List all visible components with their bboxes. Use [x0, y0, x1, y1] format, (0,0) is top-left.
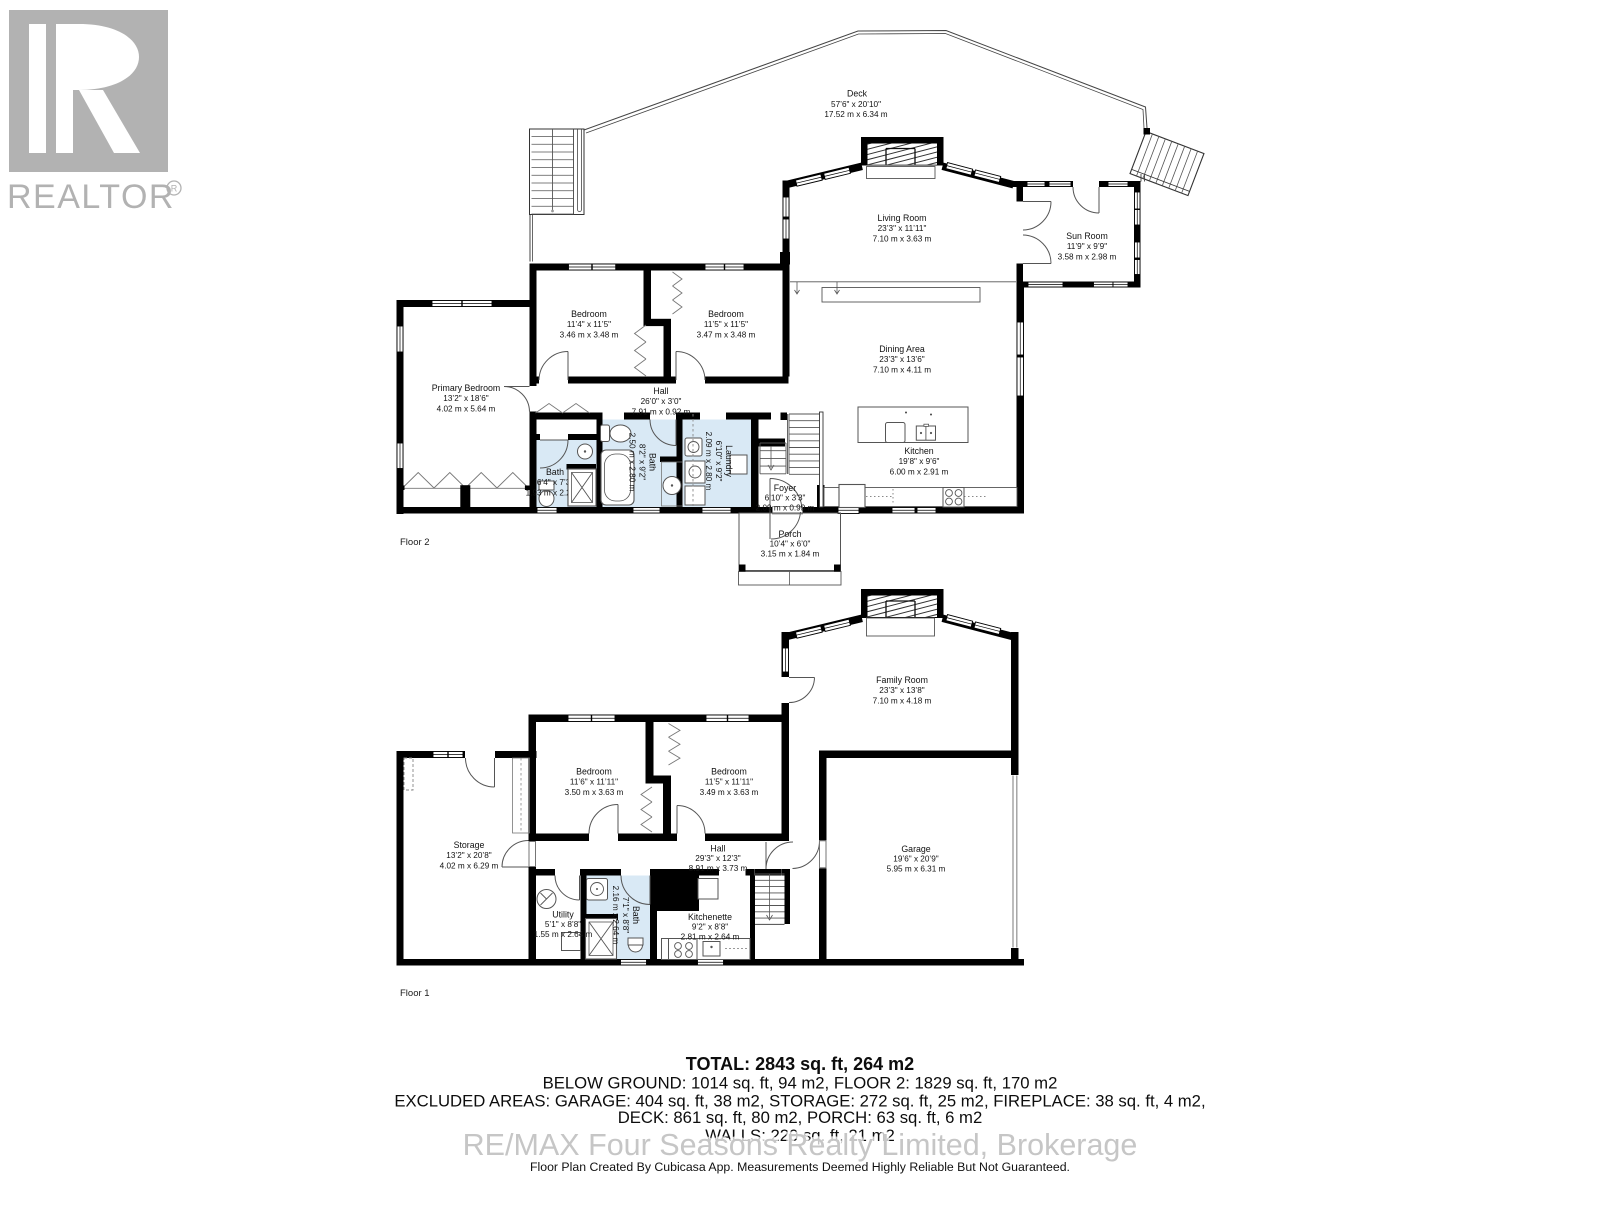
- svg-text:11’4" x 11’5": 11’4" x 11’5": [567, 320, 611, 329]
- svg-text:Kitchenette: Kitchenette: [688, 912, 732, 922]
- svg-text:3.58 m x 2.98 m: 3.58 m x 2.98 m: [1058, 252, 1117, 261]
- svg-text:2.09 m x 2.80 m: 2.09 m x 2.80 m: [704, 432, 713, 491]
- svg-text:7.91 m x 0.92 m: 7.91 m x 0.92 m: [632, 407, 691, 416]
- svg-text:2.16 m x 2.64 m: 2.16 m x 2.64 m: [611, 886, 620, 945]
- svg-text:6’10" x 3’3": 6’10" x 3’3": [765, 494, 806, 503]
- svg-text:Deck: Deck: [847, 89, 868, 99]
- svg-text:13’2" x 18’6": 13’2" x 18’6": [443, 394, 489, 403]
- svg-text:Family Room: Family Room: [876, 675, 928, 685]
- svg-text:RE/MAX Four Seasons Realty Lim: RE/MAX Four Seasons Realty Limited, Brok…: [463, 1128, 1138, 1162]
- svg-text:19’6" x 20’9": 19’6" x 20’9": [893, 855, 939, 864]
- svg-text:REALTOR: REALTOR: [7, 178, 175, 216]
- svg-text:19’8" x 9’6": 19’8" x 9’6": [899, 457, 940, 466]
- svg-text:Garage: Garage: [901, 844, 930, 854]
- svg-text:8.91 m x 3.73 m: 8.91 m x 3.73 m: [689, 864, 748, 873]
- svg-text:6’10" x 9’2": 6’10" x 9’2": [714, 441, 723, 482]
- svg-text:Bedroom: Bedroom: [576, 767, 612, 777]
- svg-text:2.81 m x 2.64 m: 2.81 m x 2.64 m: [681, 932, 740, 941]
- svg-text:Sun Room: Sun Room: [1066, 231, 1108, 241]
- svg-text:7’1" x 8’8": 7’1" x 8’8": [621, 897, 630, 933]
- svg-text:Floor Plan Created By Cubicasa: Floor Plan Created By Cubicasa App. Meas…: [530, 1160, 1070, 1174]
- svg-text:Hall: Hall: [653, 386, 668, 396]
- svg-text:7.10 m x 4.11 m: 7.10 m x 4.11 m: [873, 365, 931, 374]
- svg-text:17.52 m x 6.34 m: 17.52 m x 6.34 m: [824, 110, 887, 119]
- svg-text:4.02 m x 6.29 m: 4.02 m x 6.29 m: [440, 861, 499, 870]
- svg-text:3.47 m x 3.48 m: 3.47 m x 3.48 m: [697, 330, 756, 339]
- svg-text:2.09 m x 0.99 m: 2.09 m x 0.99 m: [756, 503, 815, 512]
- svg-text:Foyer: Foyer: [774, 483, 797, 493]
- svg-text:R: R: [171, 184, 178, 194]
- svg-text:11’5" x 11’11": 11’5" x 11’11": [705, 778, 753, 787]
- svg-text:23’3" x 11’11": 23’3" x 11’11": [878, 224, 927, 233]
- svg-text:11’9" x 9’9": 11’9" x 9’9": [1067, 242, 1107, 251]
- svg-text:23’3" x 13’6": 23’3" x 13’6": [879, 355, 925, 364]
- svg-text:Bedroom: Bedroom: [571, 309, 607, 319]
- svg-text:2.50 m x 2.80 m: 2.50 m x 2.80 m: [628, 433, 637, 492]
- svg-text:Porch: Porch: [779, 529, 802, 539]
- svg-text:Floor 2: Floor 2: [400, 537, 430, 548]
- svg-text:Laundry: Laundry: [724, 445, 734, 477]
- svg-text:23’3" x 13’8": 23’3" x 13’8": [879, 686, 925, 695]
- svg-text:Floor 1: Floor 1: [400, 988, 430, 999]
- svg-text:3.50 m x 3.63 m: 3.50 m x 3.63 m: [565, 788, 624, 797]
- svg-text:10’4" x 6’0": 10’4" x 6’0": [770, 540, 811, 549]
- svg-text:Primary Bedroom: Primary Bedroom: [432, 383, 500, 393]
- svg-text:57’6" x 20’10": 57’6" x 20’10": [831, 100, 881, 109]
- svg-text:11’5" x 11’5": 11’5" x 11’5": [704, 320, 748, 329]
- svg-text:5’1" x 8’8": 5’1" x 8’8": [545, 920, 581, 929]
- svg-text:3.49 m x 3.63 m: 3.49 m x 3.63 m: [700, 788, 759, 797]
- svg-text:7.10 m x 4.18 m: 7.10 m x 4.18 m: [873, 696, 932, 705]
- svg-text:29’3" x 12’3": 29’3" x 12’3": [695, 854, 741, 863]
- svg-text:8’2" x 9’2": 8’2" x 9’2": [638, 444, 647, 480]
- svg-text:Bedroom: Bedroom: [708, 309, 744, 319]
- svg-text:3.46 m x 3.48 m: 3.46 m x 3.48 m: [560, 330, 619, 339]
- svg-text:5.95 m x 6.31 m: 5.95 m x 6.31 m: [887, 864, 946, 873]
- svg-text:Kitchen: Kitchen: [904, 446, 933, 456]
- svg-text:Bedroom: Bedroom: [711, 767, 747, 777]
- svg-text:7.10 m x 3.63 m: 7.10 m x 3.63 m: [873, 234, 932, 243]
- svg-text:Bath: Bath: [648, 453, 658, 471]
- svg-text:Bath: Bath: [546, 467, 564, 477]
- svg-text:Living Room: Living Room: [878, 213, 927, 223]
- svg-text:13’2" x 20’8": 13’2" x 20’8": [446, 851, 492, 860]
- svg-text:4.02 m x 5.64 m: 4.02 m x 5.64 m: [437, 404, 496, 413]
- svg-text:Utility: Utility: [552, 910, 574, 920]
- svg-text:26’0" x 3’0": 26’0" x 3’0": [641, 397, 682, 406]
- svg-text:1.55 m x 2.64 m: 1.55 m x 2.64 m: [534, 930, 593, 939]
- svg-text:9’2" x 8’8": 9’2" x 8’8": [692, 923, 728, 932]
- svg-text:3.15 m x 1.84 m: 3.15 m x 1.84 m: [761, 549, 820, 558]
- svg-text:TOTAL: 2843 sq. ft, 264 m2: TOTAL: 2843 sq. ft, 264 m2: [686, 1054, 914, 1074]
- svg-text:6.00 m x 2.91 m: 6.00 m x 2.91 m: [890, 467, 949, 476]
- svg-text:DECK: 861 sq. ft, 80 m2, PORCH: DECK: 861 sq. ft, 80 m2, PORCH: 63 sq. f…: [618, 1108, 983, 1127]
- svg-text:Storage: Storage: [454, 840, 485, 850]
- svg-text:Bath: Bath: [631, 906, 641, 924]
- svg-text:BELOW GROUND: 1014 sq. ft, 94: BELOW GROUND: 1014 sq. ft, 94 m2, FLOOR …: [543, 1074, 1058, 1093]
- svg-text:Dining Area: Dining Area: [879, 344, 925, 354]
- svg-text:11’6" x 11’11": 11’6" x 11’11": [570, 778, 618, 787]
- svg-text:Hall: Hall: [710, 844, 725, 854]
